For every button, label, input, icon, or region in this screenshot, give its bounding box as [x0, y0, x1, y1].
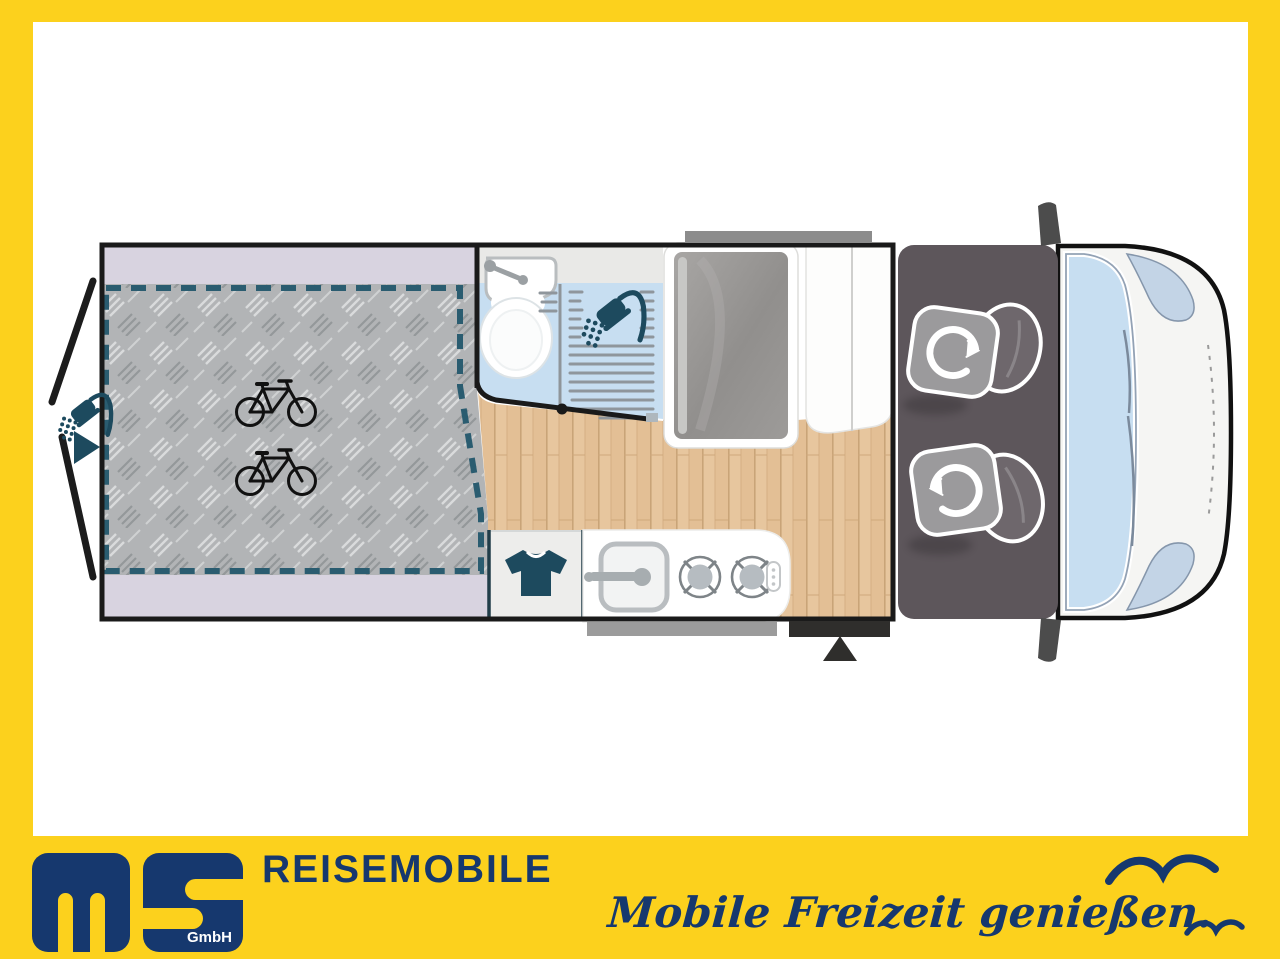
logo-m-slot [90, 893, 105, 952]
entry-step [587, 622, 777, 636]
door-end-tab [646, 413, 658, 422]
rear-garage-area [102, 284, 488, 575]
campervan-floorplan [0, 0, 1280, 959]
brand-band: GmbH REISEMOBILE Mobile Freizeit genieße… [0, 836, 1280, 959]
side-mirror-bottom [1038, 618, 1061, 662]
dealer-floorplan-image: { "brand": { "logo_letters": "ms", "logo… [0, 0, 1280, 959]
logo-s-slot [143, 908, 203, 929]
entry-door [789, 621, 890, 637]
logo-m-slot [58, 893, 73, 952]
bird-icon [1109, 858, 1215, 881]
seagull-birds [1095, 841, 1255, 951]
refrigerator [664, 243, 798, 448]
wardrobe-cabinet [806, 244, 893, 433]
door-hinge [557, 404, 568, 415]
logo-gmbh-text: GmbH [187, 929, 239, 946]
cab-floor [898, 245, 1058, 619]
bathroom [479, 247, 663, 419]
driver-cab [898, 202, 1231, 662]
entrance-triangle-icon [823, 636, 857, 661]
company-name: REISEMOBILE [262, 848, 553, 892]
roof-rail [685, 231, 872, 243]
trim-band-bottom [102, 575, 488, 619]
side-mirror-top [1038, 202, 1061, 246]
kitchen-unit [583, 530, 790, 622]
logo-letter-m [32, 853, 130, 952]
brand-tagline: Mobile Freizeit genießen. [606, 888, 1154, 937]
trim-band-top [102, 245, 477, 286]
bird-icon [1187, 922, 1242, 933]
rear-arrow-icon [74, 431, 100, 464]
tshirt-cabinet [489, 530, 583, 620]
windshield [1066, 254, 1136, 610]
logo-letter-s: GmbH [143, 853, 243, 952]
van-body [102, 243, 893, 622]
logo-s-slot [185, 879, 243, 900]
